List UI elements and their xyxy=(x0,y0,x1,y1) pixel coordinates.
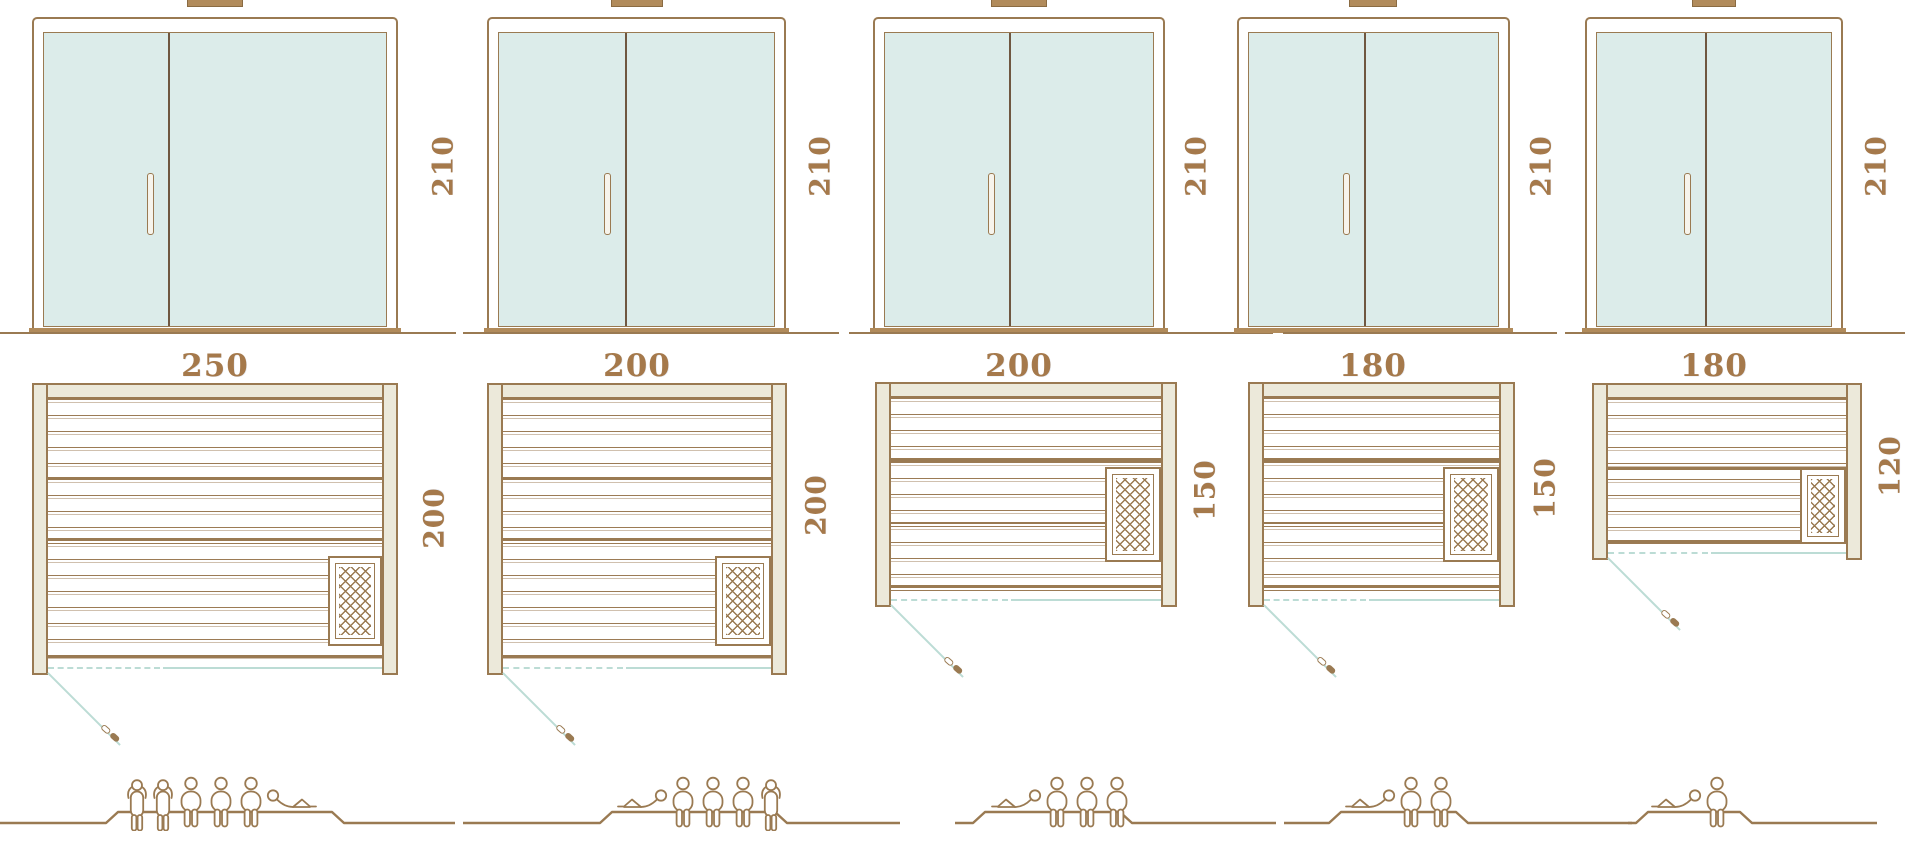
sauna-size-diagram: 250210200 200210200 200210150 180210150 … xyxy=(0,0,1920,856)
handle-knob-filled xyxy=(1669,617,1680,628)
heater-box xyxy=(1800,468,1846,544)
elevation-ground-line xyxy=(1565,332,1905,334)
capacity-people-group xyxy=(1648,775,1732,831)
door-handle-icon xyxy=(1684,173,1691,235)
door-opening-dashed-line xyxy=(1608,552,1708,554)
door-elevation xyxy=(1585,17,1843,330)
front-glass-line xyxy=(1711,552,1846,554)
heater-inner-frame xyxy=(1807,475,1839,537)
dimension-height-label: 210 xyxy=(1860,135,1893,196)
door-pane-divider-line xyxy=(1705,33,1707,326)
heater-grille-icon xyxy=(1811,479,1835,533)
capacity-person xyxy=(1702,776,1732,831)
floor-plan xyxy=(1592,383,1862,560)
plan-left-post xyxy=(1592,383,1608,560)
dimension-depth-label: 120 xyxy=(1874,435,1907,496)
person-lying-icon xyxy=(1648,788,1702,814)
roof-vent-cap xyxy=(1692,0,1736,7)
plan-door-handle-icon xyxy=(1659,607,1684,630)
handle-knob-outline xyxy=(1660,609,1671,620)
sauna-panel-5: 180210120 xyxy=(0,0,1920,856)
capacity-person xyxy=(1648,788,1702,814)
door-glass xyxy=(1596,32,1832,327)
plan-right-post xyxy=(1846,383,1862,560)
dimension-width-label: 180 xyxy=(1680,348,1748,384)
person-sitting-icon xyxy=(1702,776,1732,831)
plan-top-wall xyxy=(1592,383,1862,399)
